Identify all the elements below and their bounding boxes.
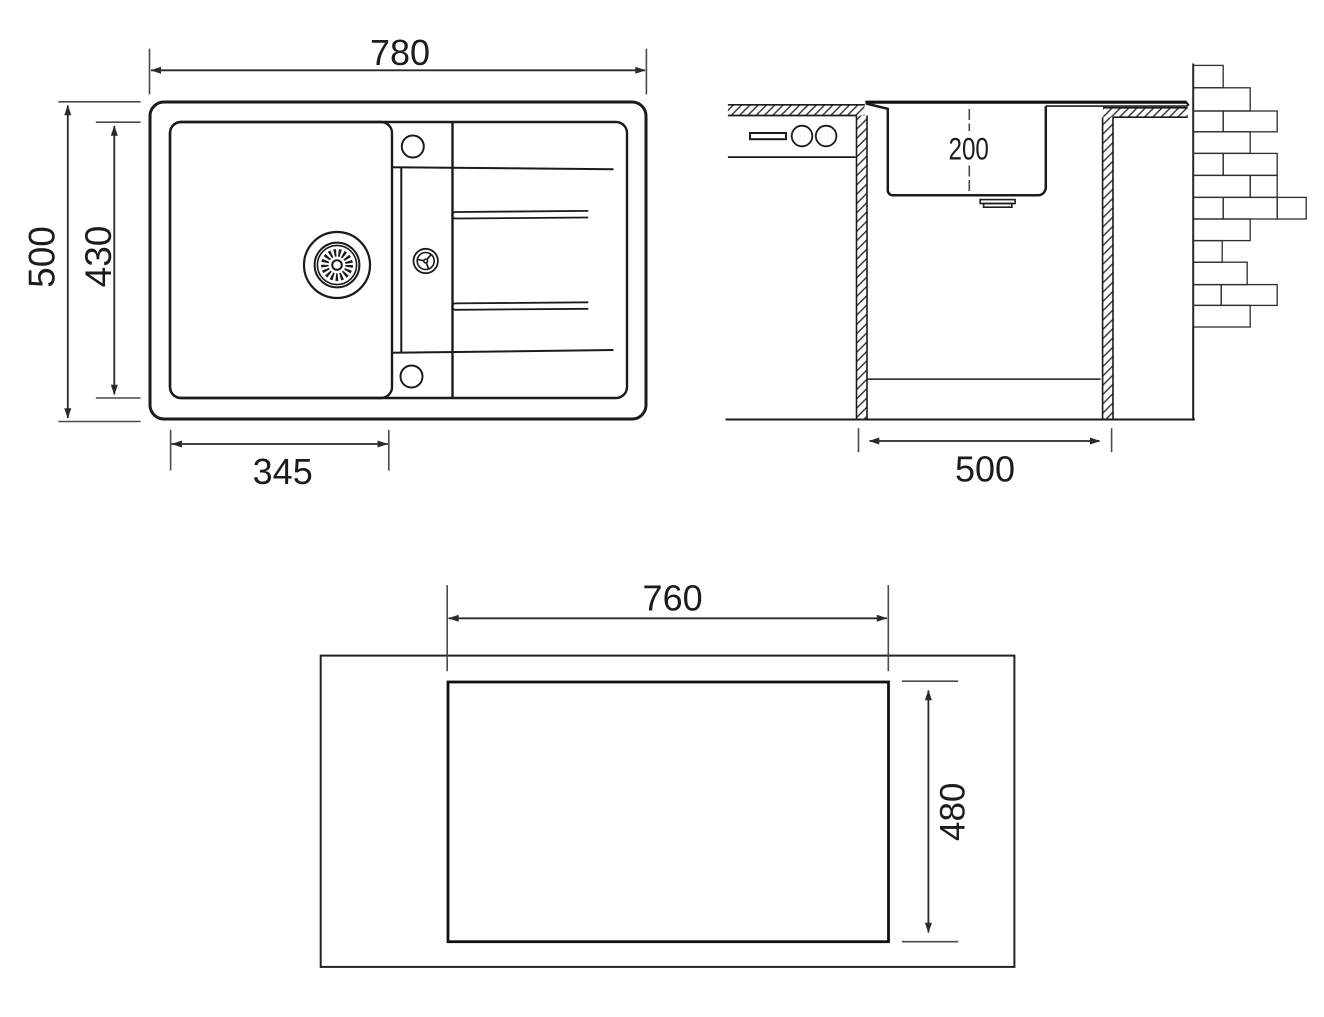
svg-text:760: 760 xyxy=(643,578,703,619)
svg-text:430: 430 xyxy=(78,226,119,288)
svg-text:780: 780 xyxy=(370,32,430,73)
svg-text:500: 500 xyxy=(22,226,63,288)
svg-text:500: 500 xyxy=(955,449,1015,490)
svg-text:480: 480 xyxy=(933,783,972,841)
svg-text:345: 345 xyxy=(253,451,313,492)
svg-text:200: 200 xyxy=(949,131,989,167)
